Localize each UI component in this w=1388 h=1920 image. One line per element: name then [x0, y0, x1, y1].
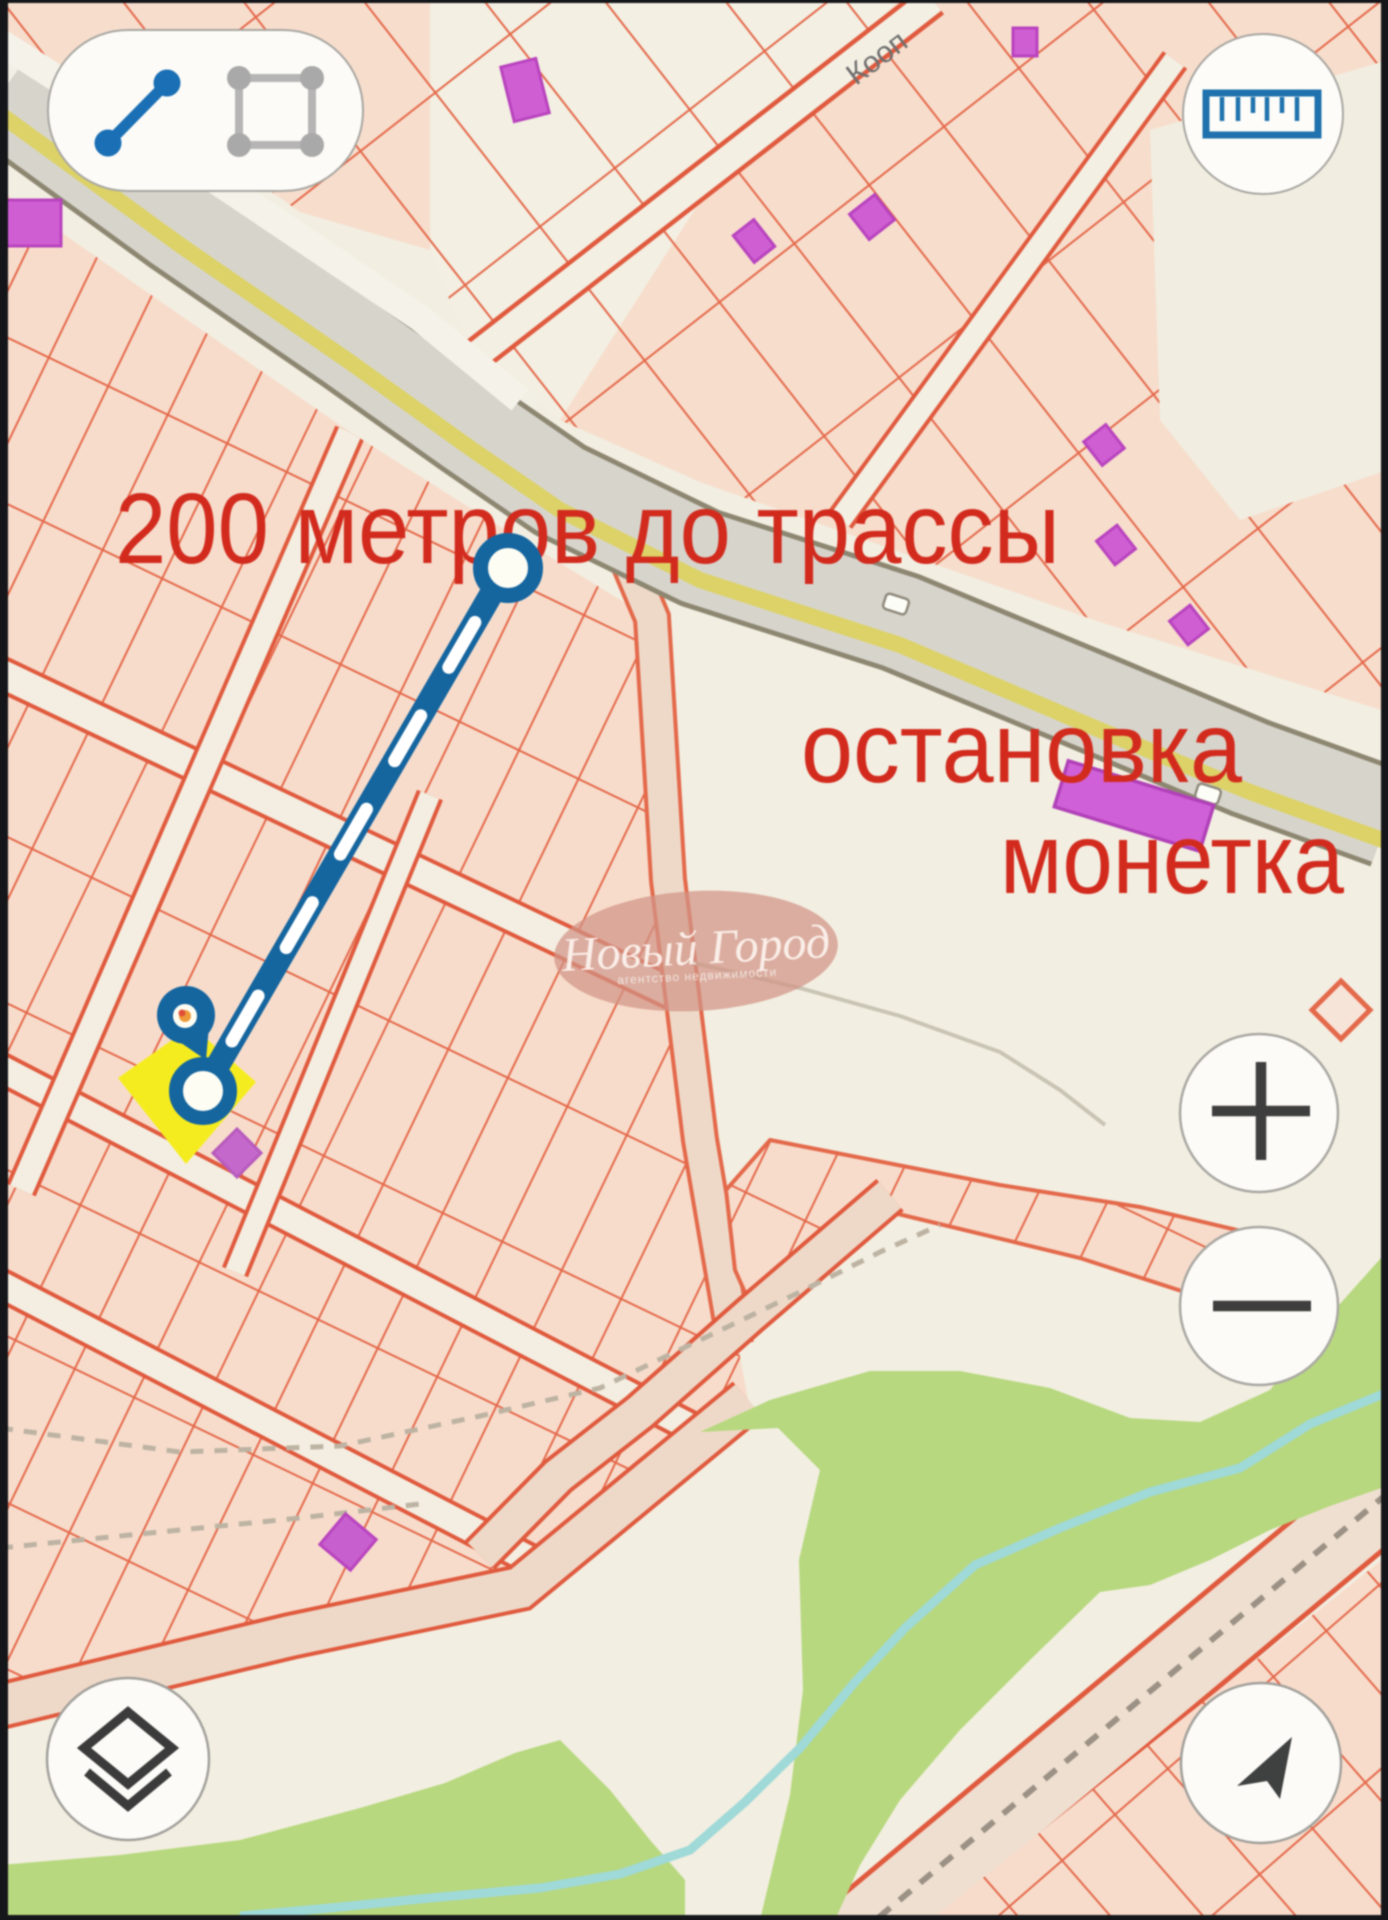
svg-text:монетка: монетка	[1000, 803, 1344, 915]
svg-text:остановка: остановка	[801, 692, 1242, 804]
svg-text:200 метров до трассы: 200 метров до трассы	[115, 473, 1060, 585]
